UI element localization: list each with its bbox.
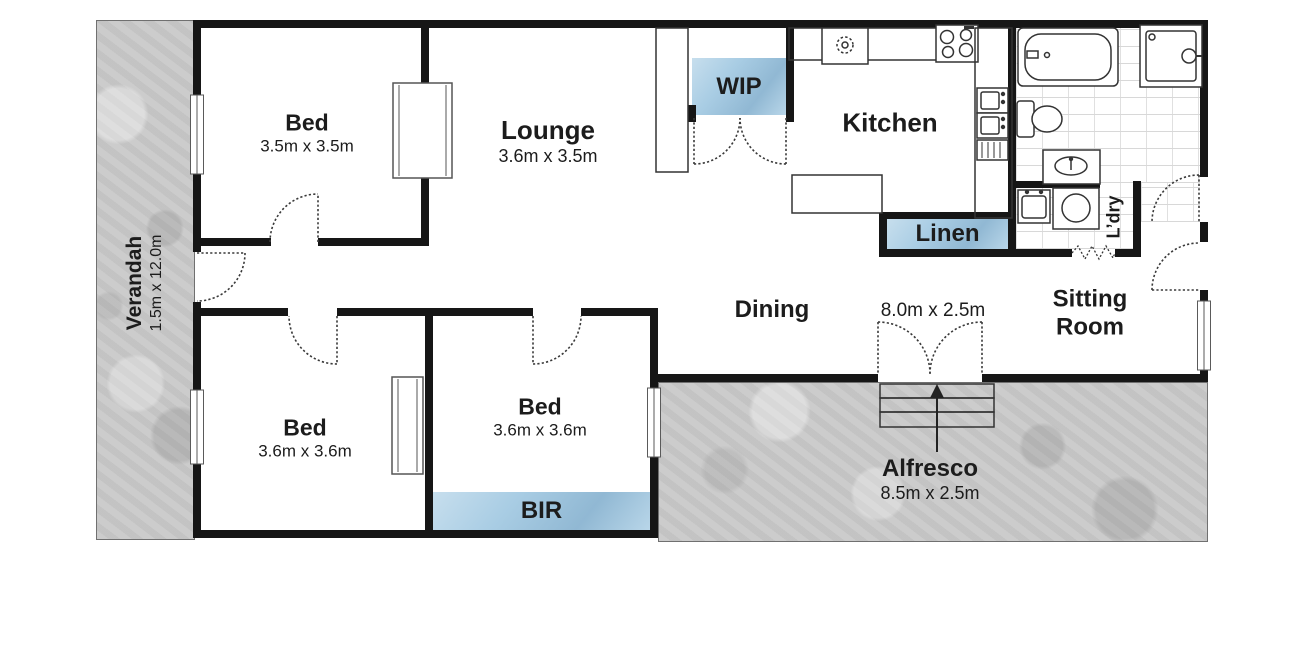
bed2-label: Bed 3.6m x 3.6m xyxy=(258,414,352,461)
dishwasher xyxy=(977,140,1008,160)
kitchen-label: Kitchen xyxy=(842,108,937,139)
wardrobe xyxy=(393,83,452,178)
alfresco-label: Alfresco 8.5m x 2.5m xyxy=(880,455,979,505)
washing-machine xyxy=(1053,188,1099,229)
window xyxy=(191,390,204,464)
door-bathroom xyxy=(1152,175,1199,222)
door-sitting xyxy=(1152,243,1199,290)
dining-label: Dining xyxy=(735,296,810,324)
sitting-room-label: Sitting Room xyxy=(1053,286,1128,343)
door-bed3 xyxy=(533,316,581,364)
island-bench xyxy=(792,175,882,213)
window xyxy=(1198,301,1211,370)
verandah-label: Verandah 1.5m x 12.0m xyxy=(123,235,167,332)
shower xyxy=(1140,25,1202,87)
laundry-label: L’dry xyxy=(1103,195,1124,238)
door-entry xyxy=(197,253,245,301)
toilet xyxy=(1017,101,1062,137)
window xyxy=(191,95,204,174)
pantry-cupboard xyxy=(656,28,688,172)
lounge-label: Lounge 3.6m x 3.5m xyxy=(498,115,597,167)
floor-plan: WIP Linen BIR xyxy=(0,0,1300,650)
bed3-label: Bed 3.6m x 3.6m xyxy=(493,393,587,440)
door-bed1 xyxy=(270,194,318,242)
laundry-trough xyxy=(1018,190,1050,223)
vanity xyxy=(1043,150,1100,184)
dining-dims: 8.0m x 2.5m xyxy=(881,300,986,322)
door-bed2 xyxy=(289,316,337,364)
door-alfresco-double xyxy=(878,322,982,374)
bed1-label: Bed 3.5m x 3.5m xyxy=(260,109,354,156)
window xyxy=(648,388,661,457)
stove xyxy=(936,25,978,62)
kitchen-sink xyxy=(977,88,1008,138)
wardrobe xyxy=(392,377,423,474)
rangehood-cooktop xyxy=(822,28,868,64)
door-wip-double xyxy=(694,118,786,164)
up-arrow xyxy=(930,384,944,452)
bathtub xyxy=(1018,28,1118,86)
